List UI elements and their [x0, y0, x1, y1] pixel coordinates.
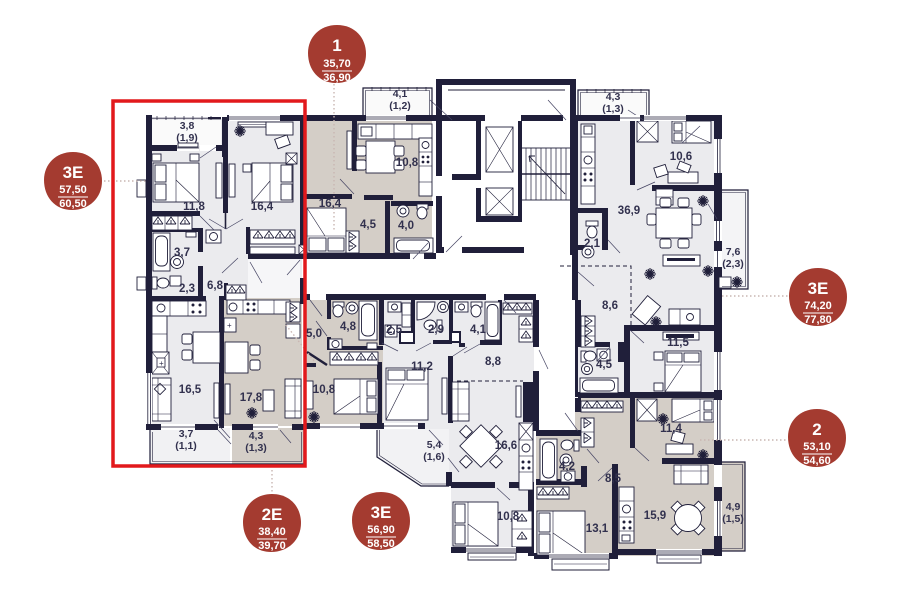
- svg-text:57,50: 57,50: [59, 184, 87, 196]
- svg-text:3E: 3E: [808, 279, 829, 298]
- svg-text:11,2: 11,2: [411, 361, 433, 373]
- svg-text:(1,6): (1,6): [423, 451, 445, 463]
- svg-text:2,5: 2,5: [386, 324, 403, 336]
- svg-text:+: +: [227, 321, 232, 330]
- svg-text:16,4: 16,4: [319, 198, 342, 210]
- svg-text:4,5: 4,5: [360, 219, 377, 231]
- svg-text:2,1: 2,1: [584, 238, 601, 250]
- svg-text:5,4: 5,4: [427, 439, 442, 451]
- svg-text:8,5: 8,5: [605, 473, 622, 485]
- svg-text:(2,3): (2,3): [722, 258, 744, 270]
- svg-text:56,90: 56,90: [367, 524, 395, 536]
- svg-text:10,8: 10,8: [396, 157, 419, 169]
- svg-text:2E: 2E: [262, 505, 283, 524]
- svg-text:(1,9): (1,9): [176, 132, 198, 144]
- svg-text:53,10: 53,10: [803, 441, 831, 453]
- svg-text:60,50: 60,50: [59, 198, 87, 210]
- svg-text:6,8: 6,8: [207, 280, 224, 292]
- svg-text:3E: 3E: [63, 163, 84, 182]
- svg-text:36,9: 36,9: [618, 205, 640, 217]
- svg-text:39,70: 39,70: [258, 540, 286, 552]
- svg-text:1: 1: [332, 36, 341, 55]
- svg-text:74,20: 74,20: [804, 300, 832, 312]
- svg-text:(1,3): (1,3): [245, 442, 267, 454]
- svg-text:15,9: 15,9: [644, 510, 666, 522]
- svg-text:3,7: 3,7: [174, 247, 190, 259]
- svg-text:16,4: 16,4: [251, 201, 274, 213]
- svg-text:4,9: 4,9: [726, 501, 741, 513]
- svg-text:4,1: 4,1: [393, 88, 408, 100]
- svg-text:36,90: 36,90: [323, 72, 351, 84]
- svg-text:(1,1): (1,1): [175, 440, 197, 452]
- svg-text:4,3: 4,3: [606, 91, 621, 103]
- svg-text:10,8: 10,8: [497, 511, 520, 523]
- svg-text:7,6: 7,6: [726, 246, 741, 258]
- svg-text:(1,5): (1,5): [722, 513, 744, 525]
- svg-text:4,0: 4,0: [398, 220, 414, 232]
- svg-text:(1,2): (1,2): [389, 100, 411, 112]
- svg-text:4,8: 4,8: [340, 321, 357, 333]
- svg-text:17,8: 17,8: [240, 392, 263, 404]
- svg-text:58,50: 58,50: [367, 538, 395, 550]
- svg-text:54,60: 54,60: [803, 455, 831, 467]
- svg-text:16,6: 16,6: [495, 440, 517, 452]
- svg-text:38,40: 38,40: [258, 526, 286, 538]
- svg-text:5,0: 5,0: [306, 328, 322, 340]
- svg-text:13,1: 13,1: [586, 523, 609, 535]
- svg-text:77,80: 77,80: [804, 314, 832, 326]
- svg-text:8,6: 8,6: [602, 300, 618, 312]
- svg-text:11,5: 11,5: [667, 337, 689, 349]
- svg-text:4,1: 4,1: [470, 324, 487, 336]
- svg-text:10,8: 10,8: [313, 384, 336, 396]
- svg-text:10,6: 10,6: [670, 151, 692, 163]
- svg-text:4,5: 4,5: [596, 359, 613, 371]
- svg-text:3,7: 3,7: [179, 428, 194, 440]
- svg-text:11,8: 11,8: [183, 201, 205, 213]
- svg-text:(1,3): (1,3): [602, 103, 624, 115]
- svg-text:4,2: 4,2: [559, 461, 575, 473]
- svg-text:8,8: 8,8: [485, 356, 502, 368]
- svg-text:3,8: 3,8: [180, 120, 195, 132]
- svg-text:2,9: 2,9: [428, 324, 444, 336]
- svg-text:35,70: 35,70: [323, 58, 351, 70]
- svg-text:16,5: 16,5: [179, 384, 202, 396]
- svg-text:11,4: 11,4: [660, 423, 682, 435]
- svg-text:3E: 3E: [371, 503, 392, 522]
- svg-text:2,3: 2,3: [179, 283, 195, 295]
- svg-text:+: +: [159, 359, 164, 368]
- svg-text:2: 2: [812, 420, 821, 439]
- svg-text:4,3: 4,3: [249, 430, 264, 442]
